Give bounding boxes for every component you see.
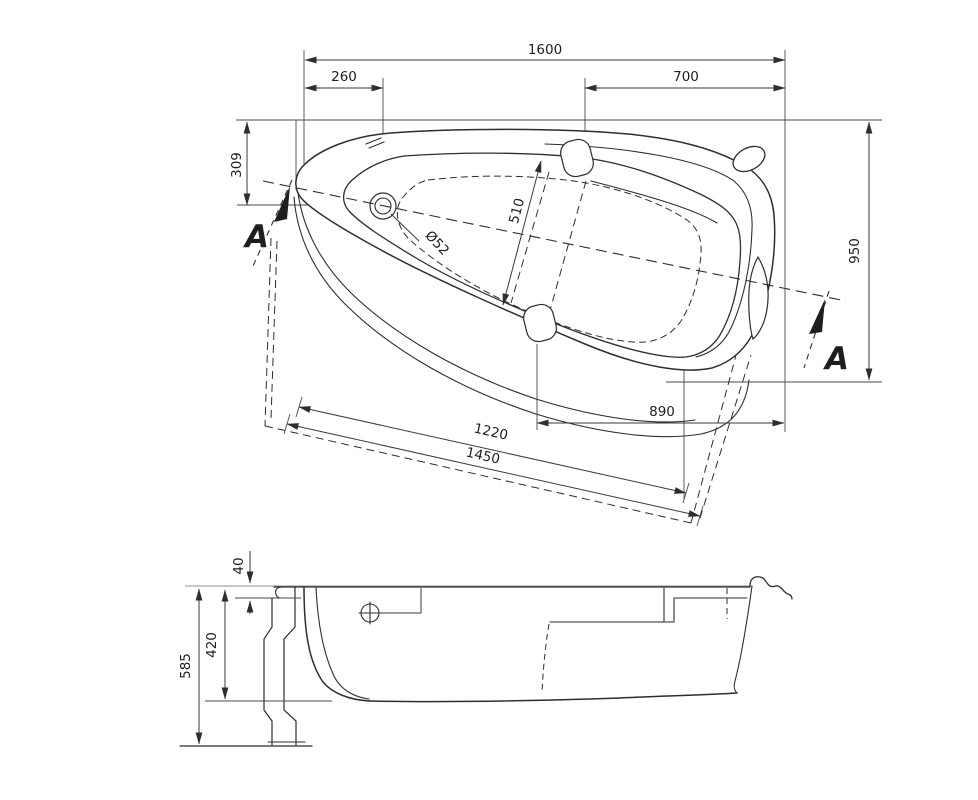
dim-1220-label: 1220 bbox=[472, 421, 509, 444]
dim-309-label: 309 bbox=[229, 152, 245, 178]
apron-dashed-right-2 bbox=[700, 355, 751, 518]
apron-dashed-left-2 bbox=[271, 241, 277, 419]
apron-dashed-right-1 bbox=[691, 344, 739, 523]
dim-420-label: 420 bbox=[204, 632, 220, 658]
section-arrow-right bbox=[809, 299, 825, 334]
drain-icon-side-cross bbox=[359, 602, 381, 624]
dim-260-label: 260 bbox=[331, 69, 357, 85]
dim-585-label: 585 bbox=[178, 653, 194, 679]
dim-700-label: 700 bbox=[673, 69, 699, 85]
support-leg-right-rail bbox=[284, 587, 296, 745]
dim-890-label: 890 bbox=[649, 404, 675, 420]
section-arrow-left bbox=[274, 186, 290, 222]
dim-950-label: 950 bbox=[847, 238, 863, 264]
technical-drawing-page: A A 1600 260 700 309 950 890 510 Ø52 122… bbox=[0, 0, 978, 800]
side-bottom-line bbox=[370, 693, 737, 702]
section-label-left: A bbox=[242, 219, 269, 255]
bathtub-technical-drawing: A A 1600 260 700 309 950 890 510 Ø52 122… bbox=[0, 0, 978, 800]
dim-1600-label: 1600 bbox=[528, 42, 562, 58]
dim-1450-label: 1450 bbox=[464, 445, 501, 468]
side-rim-curl-right bbox=[750, 577, 792, 599]
side-seat-front-dashed bbox=[542, 624, 549, 693]
drain-leader-side bbox=[379, 588, 421, 613]
apron-dashed-bottom bbox=[265, 426, 691, 523]
side-wall-left-outer bbox=[304, 587, 370, 701]
side-seat-step bbox=[550, 598, 747, 622]
support-leg-left-rail bbox=[264, 598, 272, 745]
side-wall-right bbox=[734, 586, 752, 693]
section-label-right: A bbox=[822, 341, 849, 377]
apron-dashed-left-1 bbox=[265, 238, 271, 426]
dim-40-label: 40 bbox=[231, 557, 247, 574]
